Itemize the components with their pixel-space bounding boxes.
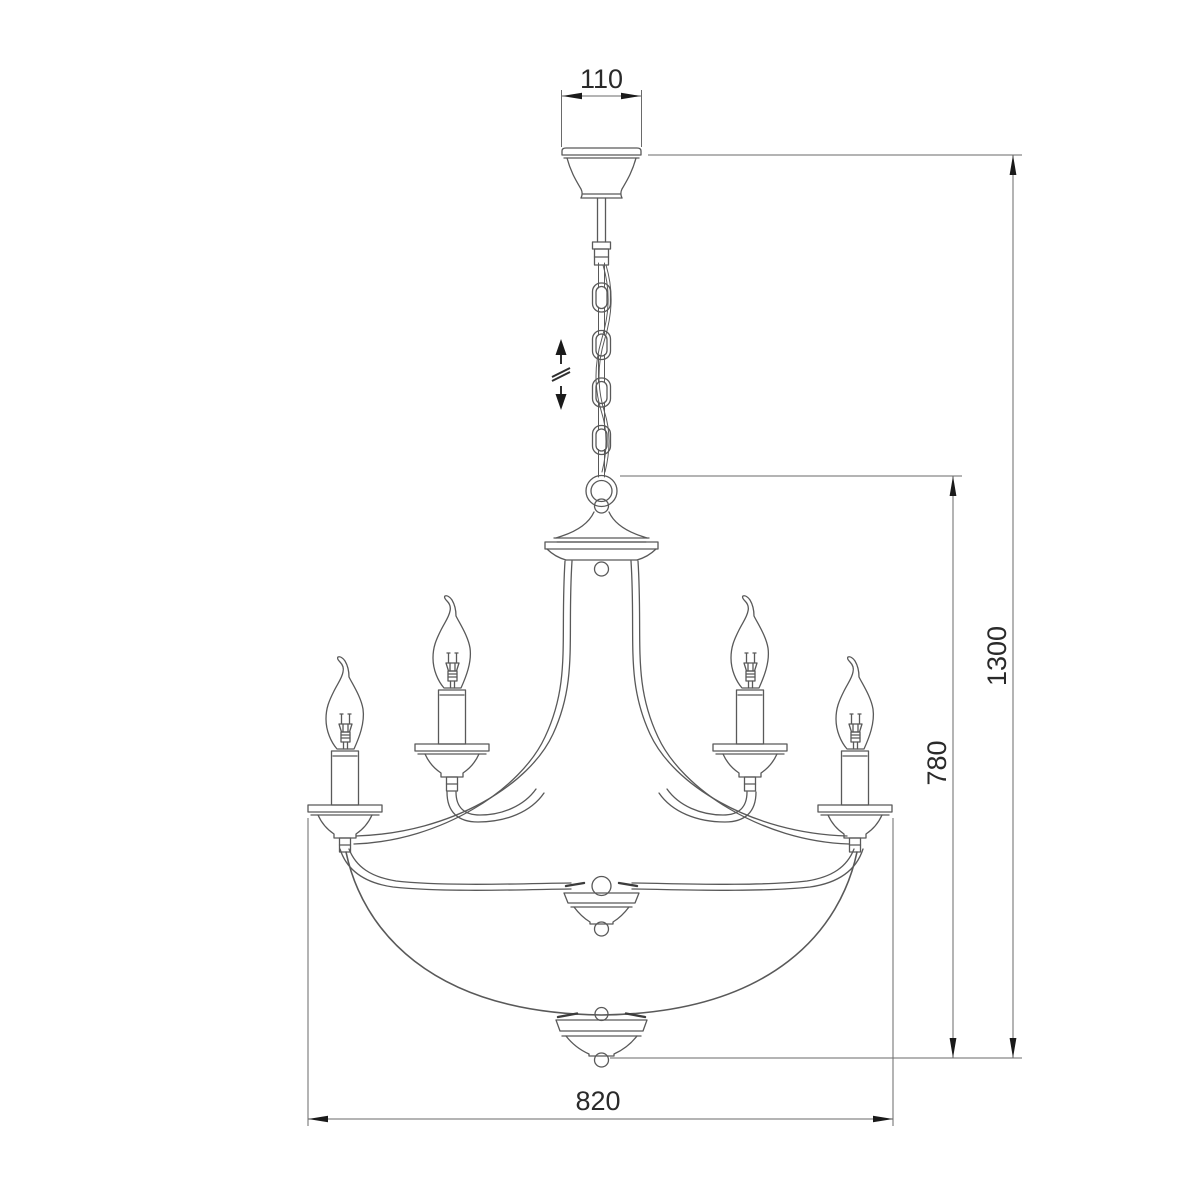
dim-body-width: 820: [308, 818, 893, 1126]
dimension-label: 1300: [982, 626, 1012, 686]
inner-basket-left: [340, 849, 571, 890]
candle-upper-left: [415, 596, 489, 791]
arrowhead-down-icon: [1010, 1038, 1017, 1058]
inner-basket-right: [632, 849, 863, 890]
hanging-ring: [586, 476, 617, 514]
dim-canopy-width: 110: [562, 64, 642, 147]
arrowhead-up-icon: [950, 476, 957, 496]
column-knob: [595, 562, 609, 576]
fixture: [308, 148, 892, 1067]
arrowhead-right-icon: [621, 93, 641, 99]
chandelier-technical-drawing: 110 1300 780 820: [0, 0, 1200, 1200]
height-adjustment-icon: [552, 339, 570, 410]
drawing-canvas: 110 1300 780 820: [0, 0, 1200, 1200]
top-cap: [554, 512, 649, 542]
chain-link: [593, 331, 611, 360]
hanging-rod: [593, 198, 611, 265]
chain-link: [593, 426, 611, 455]
dim-body-height: 780: [620, 476, 962, 1058]
dimensions: 110 1300 780 820: [308, 64, 1022, 1126]
ceiling-canopy: [562, 148, 641, 198]
dimension-label: 110: [580, 64, 623, 94]
dimension-label: 780: [922, 740, 952, 785]
middle-finial: [564, 877, 639, 937]
arrowhead-up-icon: [1010, 155, 1017, 175]
arrowhead-right-icon: [873, 1116, 893, 1122]
center-column-arms: [354, 561, 849, 844]
arrowhead-down-icon: [950, 1038, 957, 1058]
arrowhead-left-icon: [308, 1116, 328, 1122]
dim-overall-height: 1300: [610, 155, 1022, 1058]
collar: [545, 542, 658, 576]
dimension-label: 820: [575, 1086, 620, 1116]
candle-lower-right: [818, 657, 892, 852]
candle-lower-left: [308, 657, 382, 852]
candle-upper-right: [713, 596, 787, 791]
